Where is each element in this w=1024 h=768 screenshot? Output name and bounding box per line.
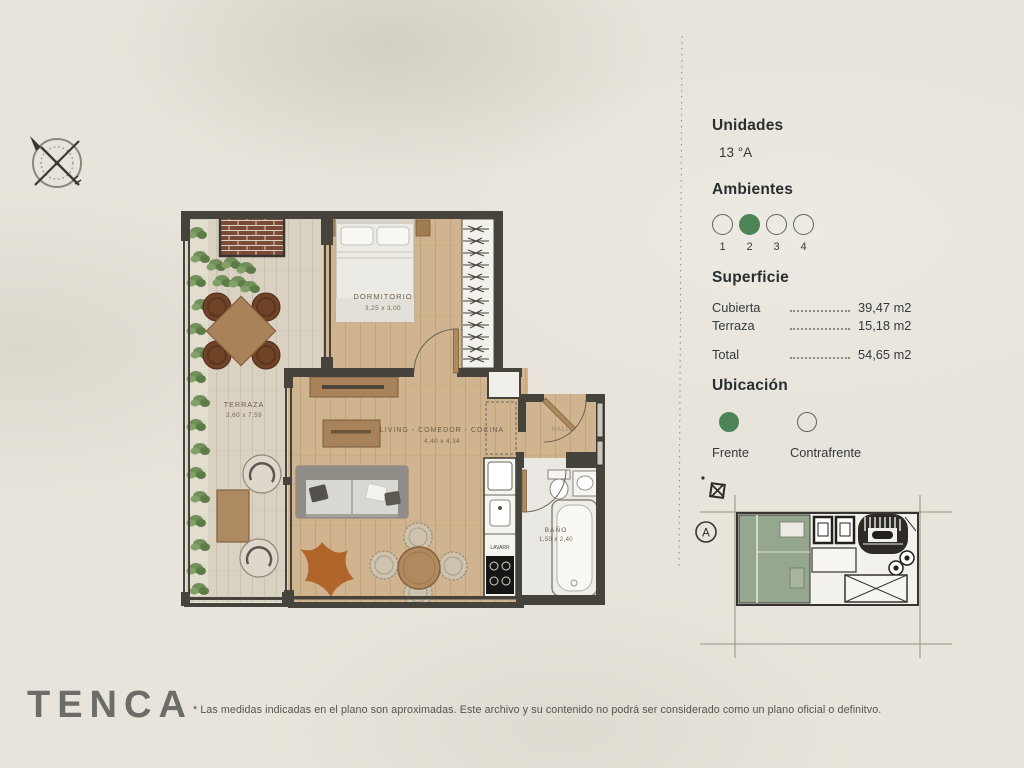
brand-logo: TENCA	[27, 684, 193, 727]
superficie-row-terraza: Terraza 15,18 m2	[712, 318, 924, 333]
toilet	[548, 470, 570, 479]
dotted-leader	[790, 318, 850, 330]
ubicacion-option-contrafrente[interactable]: Contrafrente	[790, 412, 868, 460]
ambientes-number-1: 1	[712, 241, 733, 253]
pillow	[377, 227, 409, 245]
room-lavarropas-label: LAVARR	[490, 545, 510, 551]
disclaimer-text: * Las medidas indicadas en el plano son …	[193, 704, 1011, 716]
superficie-table: Cubierta 39,47 m2 Terraza 15,18 m2 Total…	[712, 300, 924, 362]
key-plan-unit-highlight	[739, 515, 810, 603]
superficie-title: Superficie	[712, 269, 952, 287]
row-value: 54,65 m2	[858, 347, 924, 362]
room-bano-label: BAÑO	[545, 525, 568, 534]
dotted-leader	[790, 347, 850, 359]
ambientes-option-1[interactable]	[712, 214, 733, 235]
ambientes-title: Ambientes	[712, 181, 952, 199]
room-dormitorio-dims: 3,25 x 3,00	[365, 305, 401, 312]
contrafrente-label: Contrafrente	[790, 445, 868, 460]
parrilla-grill	[220, 216, 284, 256]
closet	[462, 219, 494, 368]
section-marker-label: A	[702, 528, 710, 540]
elevator-panel	[597, 441, 603, 465]
row-label: Cubierta	[712, 300, 788, 315]
ambientes-numbers: 1 2 3 4	[712, 241, 952, 253]
sofa	[296, 466, 408, 518]
superficie-row-cubierta: Cubierta 39,47 m2	[712, 300, 924, 315]
room-hall-label: HALL	[551, 427, 570, 433]
row-value: 39,47 m2	[858, 300, 924, 315]
ambientes-number-4: 4	[793, 241, 814, 253]
tv-console	[310, 377, 398, 397]
floorplan-flyer: TERRAZA 2,60 x 7,59 DORMITORIO 3,25 x 3,…	[0, 0, 1024, 768]
ubicacion-option-frente[interactable]: Frente	[712, 412, 790, 460]
room-living-label: LIVING - COMEDOR - COCINA	[380, 427, 504, 434]
dining-table	[398, 547, 440, 589]
door-dormitorio	[454, 329, 459, 373]
ubicacion-title: Ubicación	[712, 377, 952, 395]
unidades-title: Unidades	[712, 117, 952, 135]
key-plan-section-marker: A	[696, 522, 716, 542]
lounge-chair	[240, 539, 278, 577]
ambientes-option-3[interactable]	[766, 214, 787, 235]
nightstand	[416, 220, 430, 236]
shaft-box	[488, 371, 520, 398]
door-bano	[522, 470, 527, 512]
coffee-table	[217, 490, 249, 542]
ubicacion-options: Frente Contrafrente	[712, 412, 952, 460]
elevator-icon	[836, 517, 854, 543]
ambientes-option-4[interactable]	[793, 214, 814, 235]
room-terraza-label: TERRAZA	[224, 400, 265, 409]
fridge	[488, 462, 512, 490]
terraza-dining-set	[203, 293, 280, 369]
cushion	[384, 491, 401, 506]
pillow	[341, 227, 373, 245]
dotted-leader	[790, 300, 850, 312]
sink	[490, 500, 510, 526]
room-dormitorio-label: DORMITORIO	[353, 292, 412, 301]
ambientes-number-2: 2	[739, 241, 760, 253]
ambientes-option-2-selected[interactable]	[739, 214, 760, 235]
frente-label: Frente	[712, 445, 790, 460]
patio-void	[845, 575, 907, 602]
frente-radio-selected[interactable]	[719, 412, 739, 432]
elevator-icon	[814, 517, 832, 543]
stairs-icon	[858, 514, 908, 554]
ambientes-options	[712, 214, 952, 235]
superficie-row-total: Total 54,65 m2	[712, 347, 924, 362]
key-plan-compass-icon	[701, 476, 724, 498]
north-arrow-icon	[30, 136, 41, 151]
media-unit	[323, 420, 380, 447]
stove	[486, 556, 514, 594]
contrafrente-radio[interactable]	[797, 412, 817, 432]
row-label: Terraza	[712, 318, 788, 333]
room-terraza-dims: 2,60 x 7,59	[226, 412, 262, 419]
floor-plan: TERRAZA 2,60 x 7,59 DORMITORIO 3,25 x 3,…	[181, 211, 605, 608]
ambientes-number-3: 3	[766, 241, 787, 253]
unit-number: 13 °A	[719, 145, 952, 160]
room-bano-dims: 1,50 x 2,40	[539, 537, 573, 543]
info-panel: Unidades 13 °A Ambientes 1 2 3 4 Superfi…	[712, 117, 952, 460]
divider-dotted	[679, 36, 682, 566]
compass-icon	[30, 136, 81, 187]
room-living-dims: 4,40 x 4,34	[424, 438, 460, 445]
row-value: 15,18 m2	[858, 318, 924, 333]
elevator-panel	[597, 403, 603, 437]
lounge-chair	[243, 455, 281, 493]
key-plan: A	[696, 476, 952, 658]
row-label: Total	[712, 347, 788, 362]
